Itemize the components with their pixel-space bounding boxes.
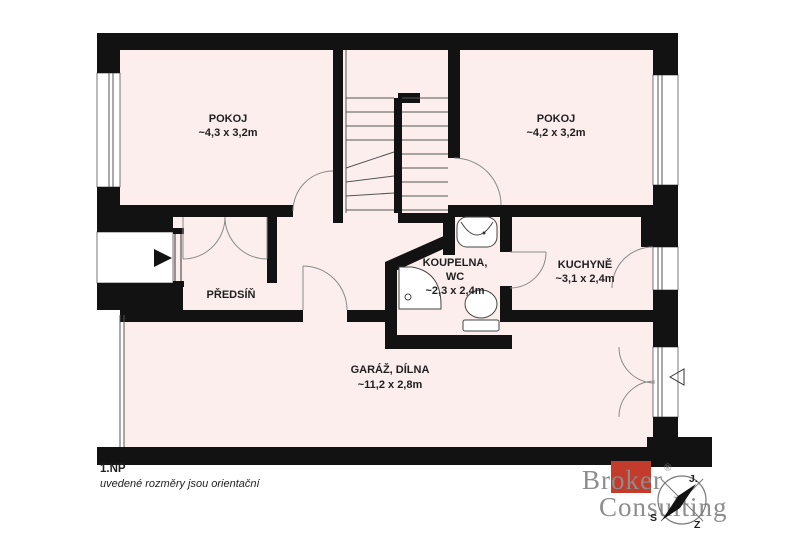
sink-icon (457, 217, 497, 247)
garage-left-thin-wall (120, 315, 124, 447)
compass-label-s: S (650, 512, 657, 524)
label-koupelna-name2: WC (446, 271, 464, 283)
floor-garage-doorway (303, 310, 347, 322)
floor-pokoj-right-doorway (448, 158, 460, 205)
registered-trademark-icon: ® (664, 463, 672, 474)
compass-label-z: Z (694, 519, 701, 531)
label-kuchyne-name: KUCHYNĚ (558, 258, 612, 271)
shower-drain (405, 294, 411, 300)
garage-side-door (653, 347, 678, 417)
logo-brand-line2: Consulting (599, 492, 728, 522)
kitchen-balcony-door (653, 247, 678, 290)
label-pokoj-left-dims: ~4,3 x 3,2m (198, 127, 257, 139)
label-garaz-dims: ~11,2 x 2,8m (358, 379, 423, 391)
label-kuchyne-dims: ~3,1 x 2,4m (555, 273, 614, 285)
floor-plan-page: POKOJ ~4,3 x 3,2m POKOJ ~4,2 x 3,2m PŘED… (0, 0, 800, 533)
logo-brand-line1: Broker (582, 465, 663, 495)
label-koupelna-dims: ~2,3 x 2,4m (425, 285, 484, 297)
label-koupelna-name: KOUPELNA, (423, 257, 488, 269)
sink-tap-dot (483, 232, 486, 235)
label-garaz-name: GARÁŽ, DÍLNA (351, 363, 430, 376)
floor-plan-drawing: POKOJ ~4,3 x 3,2m POKOJ ~4,2 x 3,2m PŘED… (0, 0, 800, 533)
label-predsin-name: PŘEDSÍŇ (207, 288, 256, 301)
dimensions-disclaimer: uvedené rozměry jsou orientační (100, 478, 261, 490)
toilet-tank (463, 320, 499, 331)
window-right (653, 75, 678, 185)
floor-label: 1.NP (100, 463, 126, 475)
label-pokoj-left-name: POKOJ (209, 113, 248, 125)
label-pokoj-right-dims: ~4,2 x 3,2m (526, 127, 585, 139)
compass-label-j: J. (689, 473, 698, 485)
label-pokoj-right-name: POKOJ (537, 113, 576, 125)
